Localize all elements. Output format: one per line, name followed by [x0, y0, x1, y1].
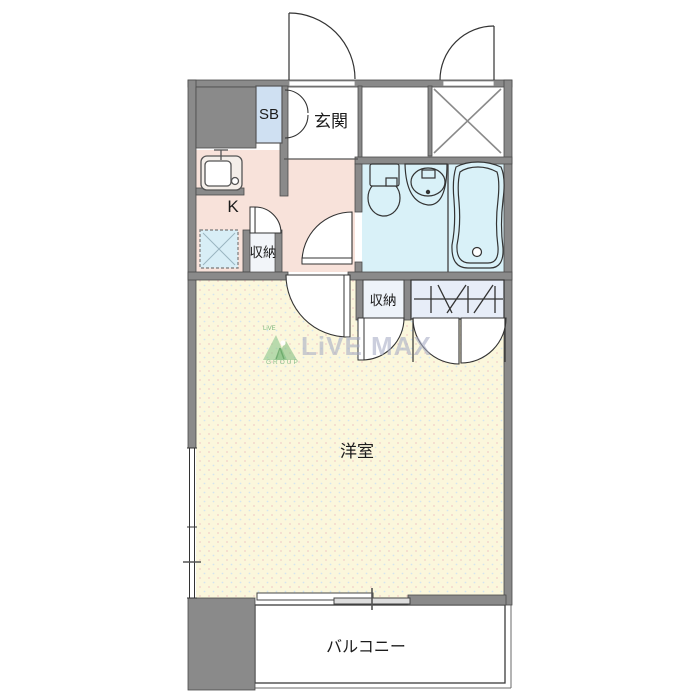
wall-block-balcony-left: [188, 598, 255, 690]
balcony-label: バルコニー: [308, 633, 424, 657]
toilet-icon: [368, 164, 400, 216]
entrance-door-arc: [289, 13, 355, 80]
shaft-door-arc: [440, 26, 494, 80]
wall-western-room-bottom-right: [408, 595, 506, 605]
meter-box-floor: [362, 86, 429, 158]
kitchen-label: K: [221, 195, 245, 219]
washing-machine-pan-icon: [200, 230, 238, 268]
floor-plan-page: LiVE LiVE MAX GROUP SB 玄関 K 収納 収納 洋室 バルコ…: [0, 0, 700, 700]
room-storage-label: 収納: [359, 289, 407, 309]
entrance-threshold: [289, 81, 355, 86]
shoe-box-label: SB: [257, 88, 281, 142]
floor-plan-drawing: [0, 0, 700, 700]
kitchen-sink-icon: [201, 150, 242, 190]
wall-bathroom-left-lower: [355, 262, 362, 272]
wall-bottom-hall-right: [348, 272, 512, 280]
hall-storage-label: 収納: [249, 233, 277, 273]
western-room-label: 洋室: [328, 437, 386, 461]
hanger-closet: [411, 280, 504, 319]
wall-block-top-left: [196, 87, 256, 148]
shaft-threshold: [443, 81, 494, 86]
wall-meterbox-shaft-divider: [428, 86, 432, 156]
wall-left-upper: [188, 80, 196, 448]
bathtub-icon: [452, 162, 504, 268]
wall-bottom-hall-left: [188, 272, 288, 280]
wall-bathroom-left-upper: [355, 164, 362, 212]
entrance-label: 玄関: [303, 107, 359, 131]
